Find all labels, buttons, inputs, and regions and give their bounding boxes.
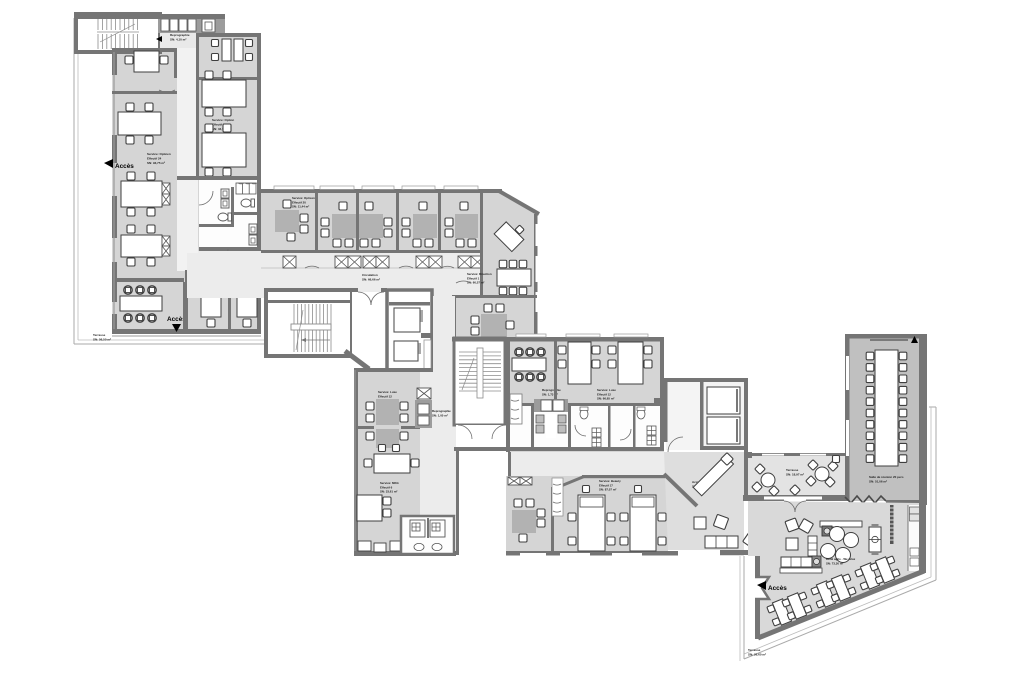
svg-text:CirculationSN: 66,66 m²: CirculationSN: 66,66 m² — [362, 273, 380, 281]
svg-text:Accès: Accès — [115, 163, 134, 170]
svg-text:Accès: Accès — [768, 585, 787, 592]
